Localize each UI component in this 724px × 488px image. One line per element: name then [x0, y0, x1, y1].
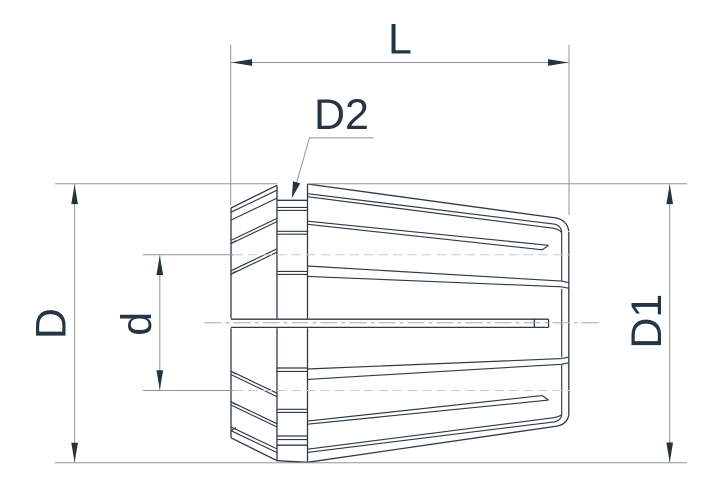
svg-text:d: d: [113, 312, 161, 336]
svg-text:D: D: [28, 308, 76, 339]
svg-text:D1: D1: [623, 294, 671, 349]
svg-text:L: L: [388, 16, 412, 64]
svg-text:D2: D2: [314, 91, 369, 139]
